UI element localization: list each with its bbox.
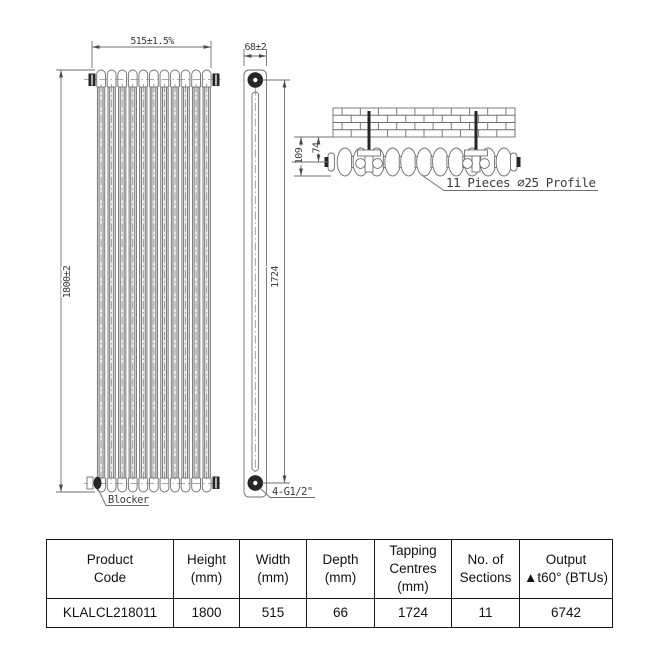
- front-section-bottom-hump: [139, 478, 148, 492]
- bracket-bolt: [373, 159, 383, 169]
- side-tapping-dim-text: 1724: [270, 266, 281, 288]
- front-cap-bottom-left: [87, 477, 93, 489]
- profile-section-bump: [433, 148, 449, 176]
- bracket-post: [472, 156, 480, 172]
- profile-section-bump: [496, 148, 512, 176]
- dim-arrowhead: [299, 137, 303, 145]
- blocker-label: Blocker: [108, 494, 149, 506]
- dim-arrowhead: [317, 137, 321, 145]
- side-top-bushing-hole: [253, 78, 257, 82]
- bracket-bolt: [463, 159, 473, 169]
- bracket-plate: [465, 150, 488, 156]
- front-section-bottom-hump: [181, 478, 190, 492]
- side-bottom-bushing-hole: [253, 481, 257, 485]
- dim-arrowhead: [59, 485, 63, 493]
- bracket-plate: [358, 150, 381, 156]
- side-view: 68±2 1724 4-G1/2": [244, 42, 315, 498]
- dim-arrowhead: [92, 45, 100, 49]
- front-section-bottom-hump: [192, 478, 201, 492]
- dim-arrowhead: [317, 155, 321, 163]
- header-product-code: Product Code: [47, 540, 174, 599]
- front-section-bottom-hump: [171, 478, 180, 492]
- bracket-post: [365, 156, 373, 172]
- technical-drawing: 515±1.5% 1800±2 Blocker 68±2: [0, 0, 650, 540]
- value-output: 6742: [520, 599, 613, 628]
- profile-end-cap-right: [511, 153, 518, 171]
- front-radiator-sections: [97, 70, 211, 492]
- profile-section-bump: [337, 148, 353, 176]
- bracket-bolt: [356, 159, 366, 169]
- dim-arrowhead: [283, 80, 287, 88]
- profile-label: 11 Pieces ∅25 Profile: [446, 175, 596, 190]
- side-depth-dim-text: 68±2: [244, 42, 266, 53]
- profile-callout: 11 Pieces ∅25 Profile: [423, 175, 598, 191]
- dim-arrowhead: [59, 70, 63, 78]
- dim-arrowhead: [244, 54, 252, 58]
- profile-section-bump: [385, 148, 401, 176]
- dim-arrowhead: [204, 45, 212, 49]
- front-height-dim-text: 1800±2: [62, 265, 73, 298]
- side-connection-label: 4-G1/2": [272, 486, 313, 498]
- header-sections: No. of Sections: [452, 540, 520, 599]
- radiator-spec-sheet: 515±1.5% 1800±2 Blocker 68±2: [0, 0, 650, 650]
- value-sections: 11: [452, 599, 520, 628]
- front-section-bottom-hump: [107, 478, 116, 492]
- dim-arrowhead: [283, 476, 287, 484]
- side-connection-callout: 4-G1/2": [260, 486, 315, 498]
- spec-table-grid: Product Code Height (mm) Width (mm) Dept…: [46, 539, 613, 628]
- front-width-dim-text: 515±1.5%: [130, 36, 174, 47]
- profile-section-bump: [401, 148, 417, 176]
- header-output: Output ▲t60° (BTUs): [520, 540, 613, 599]
- dim-arrowhead: [299, 169, 303, 177]
- spec-table-data-row: KLALCL218011 1800 515 66 1724 11 6742: [47, 599, 613, 628]
- header-depth: Depth (mm): [307, 540, 375, 599]
- spec-table: Product Code Height (mm) Width (mm) Dept…: [46, 539, 613, 628]
- value-tapping-centres: 1724: [375, 599, 452, 628]
- dim-arrowhead: [259, 54, 267, 58]
- side-depth-dimension: 68±2: [244, 42, 267, 66]
- value-width: 515: [240, 599, 307, 628]
- header-tapping-centres: Tapping Centres (mm): [375, 540, 452, 599]
- profile-section-bump: [417, 148, 433, 176]
- front-section-bottom-hump: [160, 478, 169, 492]
- header-width: Width (mm): [240, 540, 307, 599]
- front-height-dimension: 1800±2: [56, 70, 95, 492]
- front-section-bottom-hump: [150, 478, 159, 492]
- value-height: 1800: [174, 599, 240, 628]
- bracket-bolt: [480, 159, 490, 169]
- value-product-code: KLALCL218011: [47, 599, 174, 628]
- front-section-bottom-hump: [202, 478, 211, 492]
- spec-table-header-row: Product Code Height (mm) Width (mm) Dept…: [47, 540, 613, 599]
- front-view: 515±1.5% 1800±2 Blocker: [56, 36, 222, 506]
- front-section-bottom-hump: [128, 478, 137, 492]
- profile-sections: [325, 148, 521, 176]
- top-view: 109 74 11 Pieces ∅25 Profile: [292, 108, 598, 191]
- blocker-plug: [94, 477, 102, 489]
- front-section-bottom-hump: [118, 478, 127, 492]
- header-height: Height (mm): [174, 540, 240, 599]
- value-depth: 66: [307, 599, 375, 628]
- front-width-dimension: 515±1.5%: [92, 36, 211, 68]
- profile-section-bump: [448, 148, 464, 176]
- profile-end-nub-right: [517, 157, 521, 167]
